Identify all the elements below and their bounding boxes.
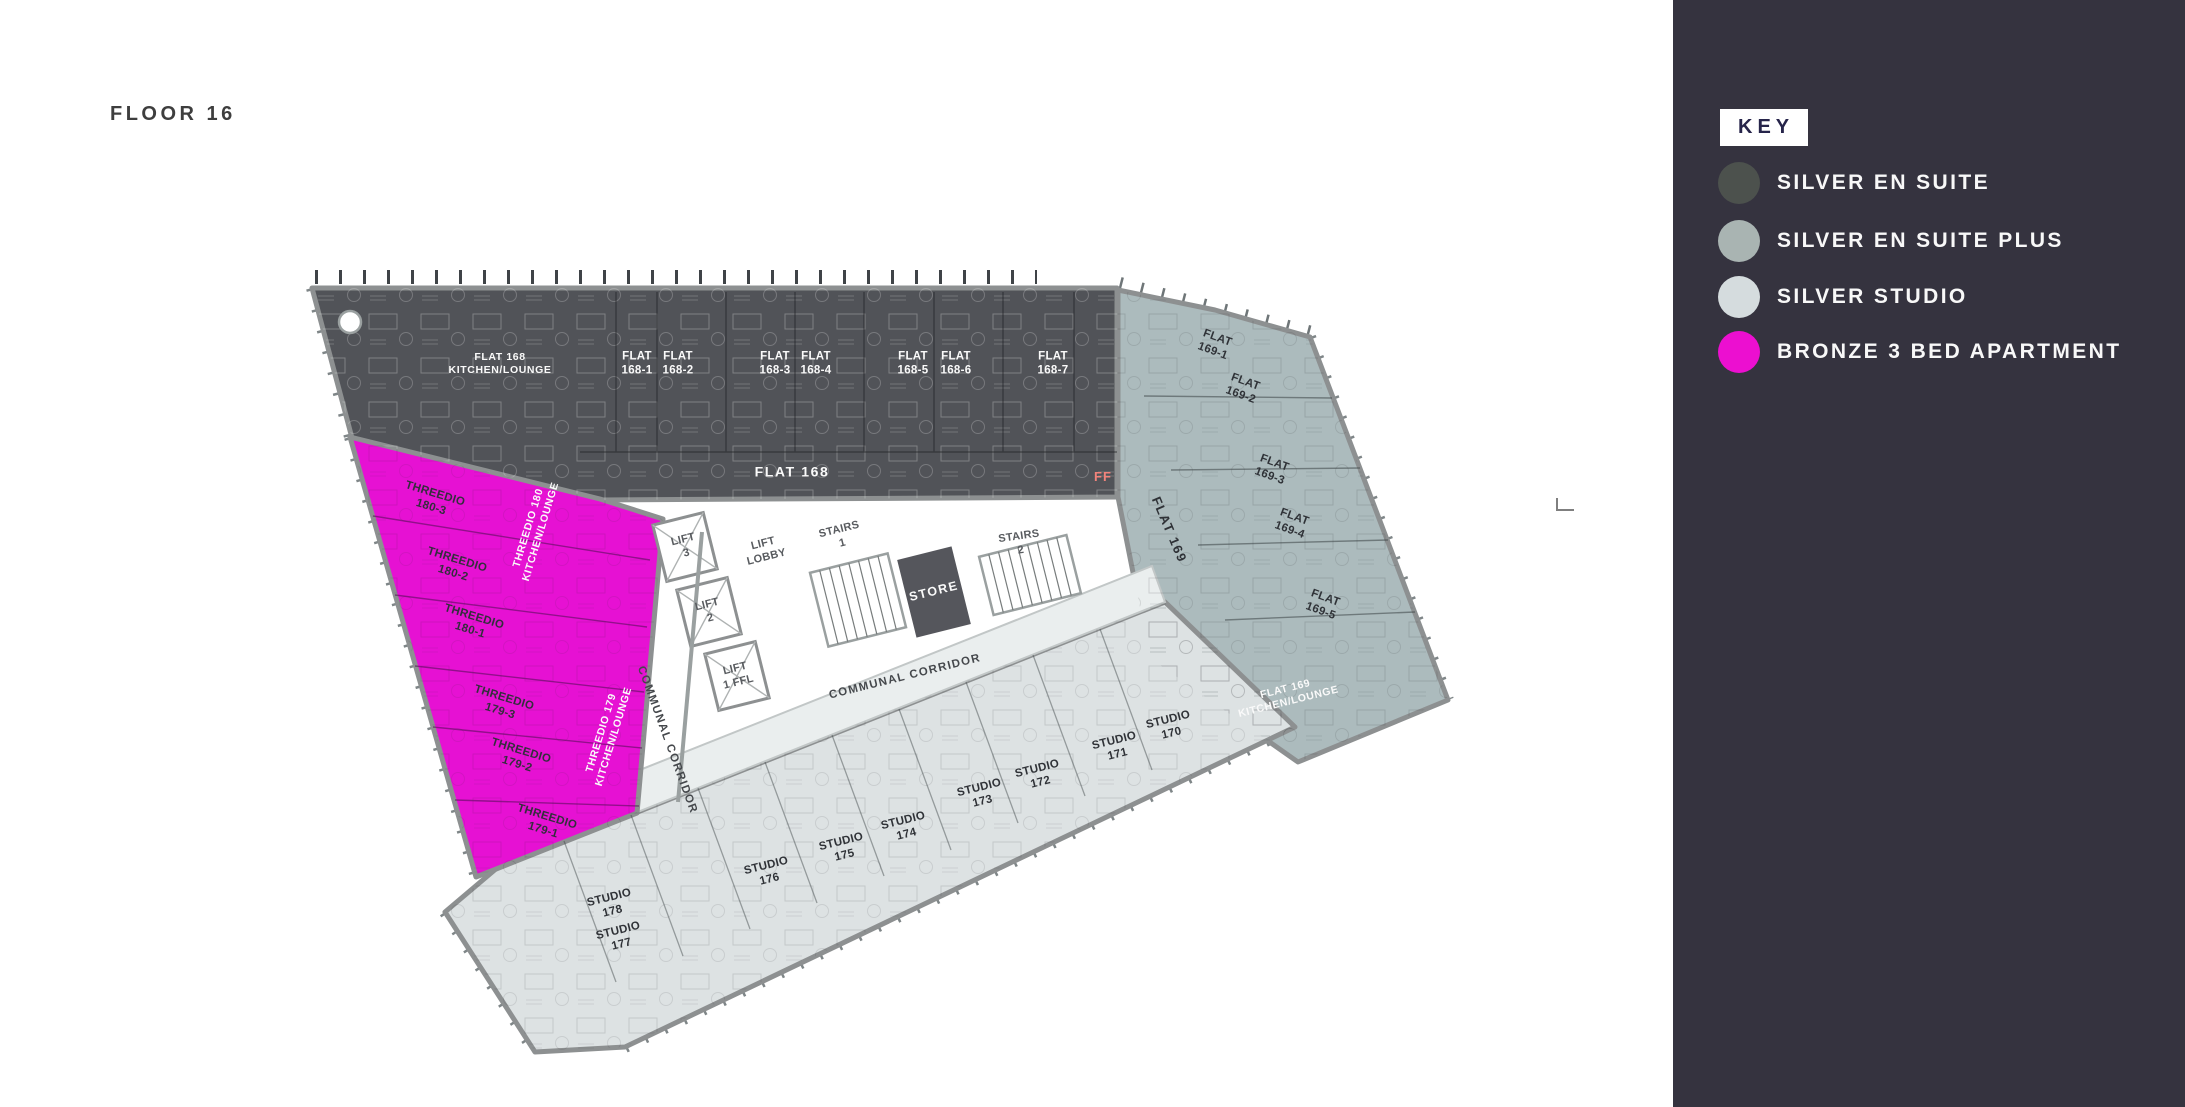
room-label: FLAT 168-7: [1038, 350, 1069, 379]
flat-label: FLAT 168: [755, 463, 830, 481]
stairwell-1: [810, 553, 906, 646]
stairs-label: STAIRS 2: [998, 528, 1043, 561]
floor-plan-drawing: [0, 0, 1673, 1107]
room-label: FLAT 168-1: [622, 350, 653, 379]
key-item-label: SILVER EN SUITE PLUS: [1777, 229, 2064, 253]
swatch-silver-studio: [1718, 276, 1760, 318]
floorplan-page: FLOOR 16: [0, 0, 2185, 1107]
ff-label: FF: [1094, 469, 1112, 485]
column: [339, 311, 361, 333]
room-label: FLAT 168-5: [898, 350, 929, 379]
key-item-silver-studio: SILVER STUDIO: [1718, 276, 1968, 318]
key-item-label: SILVER EN SUITE: [1777, 171, 1990, 195]
key-title: KEY: [1720, 109, 1808, 146]
room-label: FLAT 168-2: [663, 350, 694, 379]
room-label: FLAT 168 KITCHEN/LOUNGE: [449, 351, 552, 377]
key-item-silver-en-suite: SILVER EN SUITE: [1718, 162, 1990, 204]
scale-mark: [1556, 498, 1574, 511]
key-item-bronze-3-bed: BRONZE 3 BED APARTMENT: [1718, 331, 2121, 373]
floor-plan: FLAT 168 KITCHEN/LOUNGE FLAT 168-1 FLAT …: [0, 0, 1673, 1107]
swatch-silver-en-suite-plus: [1718, 220, 1760, 262]
key-item-silver-en-suite-plus: SILVER EN SUITE PLUS: [1718, 220, 2064, 262]
key-panel: KEY SILVER EN SUITE SILVER EN SUITE PLUS…: [1673, 0, 2185, 1107]
swatch-bronze-3-bed: [1718, 331, 1760, 373]
key-item-label: SILVER STUDIO: [1777, 285, 1968, 309]
swatch-silver-en-suite: [1718, 162, 1760, 204]
room-label: FLAT 168-4: [801, 350, 832, 379]
room-label: FLAT 168-6: [941, 350, 972, 379]
key-item-label: BRONZE 3 BED APARTMENT: [1777, 340, 2121, 364]
room-label: FLAT 168-3: [760, 350, 791, 379]
